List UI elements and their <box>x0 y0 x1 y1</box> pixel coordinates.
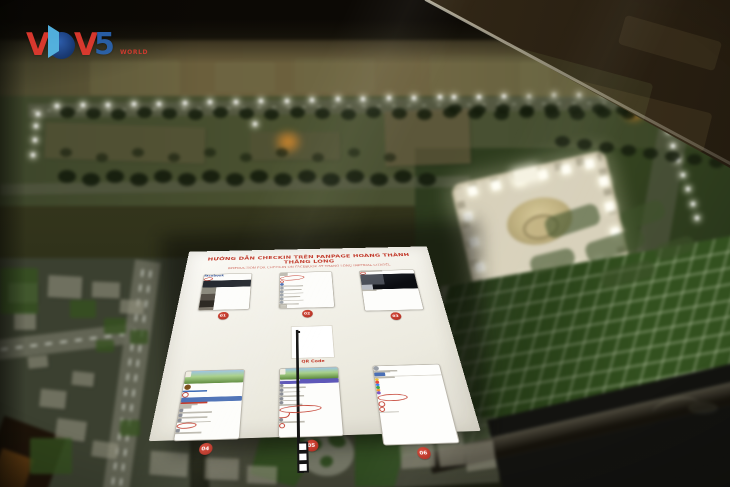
fanpage-cover-photo <box>184 370 244 384</box>
qr-block: QR Code <box>286 325 339 364</box>
logo-letter-v: V <box>74 28 96 62</box>
model-tree <box>96 153 108 162</box>
model-tree <box>348 148 360 157</box>
street-light <box>452 95 456 99</box>
model-tree <box>274 173 292 186</box>
decor-line <box>280 386 306 388</box>
green-patch <box>120 420 140 436</box>
model-building <box>47 275 82 299</box>
street-light <box>477 95 481 99</box>
phone-screenshot-search-results <box>279 271 335 309</box>
phone-screenshot-facebook-home: facebook <box>198 273 253 311</box>
night-photo <box>360 273 418 289</box>
model-tree <box>448 104 462 114</box>
model-tree <box>621 145 636 156</box>
street-light <box>438 95 442 99</box>
model-tree <box>290 107 305 118</box>
qr-finder <box>297 452 309 463</box>
model-tree <box>312 153 324 162</box>
model-tree <box>132 148 144 157</box>
model-tree <box>418 173 436 186</box>
model-tree <box>544 104 558 114</box>
reflection-shape <box>618 15 722 71</box>
model-tree <box>154 170 172 183</box>
street-light <box>336 97 340 101</box>
decor-line <box>175 432 201 434</box>
decor-line <box>179 411 212 413</box>
street-light <box>681 173 685 177</box>
street-light <box>671 144 675 148</box>
gate-image <box>180 371 192 377</box>
leaflet-step-row-2: 04 <box>162 364 470 468</box>
model-tree <box>599 142 614 153</box>
street-light <box>285 99 289 103</box>
step-1: facebook 01 <box>195 273 252 325</box>
step-badge: 03 <box>390 312 402 320</box>
step-badge: 06 <box>416 447 432 459</box>
model-tree <box>496 104 510 114</box>
red-annotation <box>279 423 285 428</box>
qr-finder <box>297 442 308 452</box>
model-tree <box>665 151 680 162</box>
street-light <box>686 187 690 191</box>
model-tree <box>592 104 606 114</box>
decor-line <box>280 395 304 397</box>
model-tree <box>417 109 432 120</box>
banner-image <box>202 280 251 288</box>
model-tree <box>58 170 76 183</box>
street-light <box>310 98 314 102</box>
model-tree <box>168 153 180 162</box>
photo-thumb <box>198 307 214 311</box>
step-6: 06 <box>372 364 463 461</box>
qr-code <box>291 325 335 359</box>
model-tree <box>264 109 279 120</box>
model-tree <box>315 108 330 119</box>
model-tree <box>392 108 407 119</box>
red-annotation <box>176 422 197 429</box>
model-tree <box>472 105 486 115</box>
model-building <box>247 465 278 484</box>
red-annotation <box>378 401 385 407</box>
model-tree <box>643 148 658 159</box>
emoji-dot <box>377 391 381 394</box>
model-tree <box>687 154 702 165</box>
model-building <box>92 282 121 299</box>
step-badge: 04 <box>198 443 213 455</box>
step-5: 05 <box>277 367 346 464</box>
model-tree <box>555 136 570 147</box>
model-tree <box>568 105 582 115</box>
vov5-logo: V V 5 WORLD <box>26 28 148 76</box>
model-tree <box>106 170 124 183</box>
step-badge: 02 <box>302 310 313 318</box>
step-2: 02 <box>278 271 336 323</box>
green-patch <box>96 340 114 352</box>
follow-pill <box>279 307 286 309</box>
qr-finder <box>297 462 309 473</box>
green-patch <box>104 318 126 334</box>
phone-screenshot-fanpage-menu <box>278 367 344 439</box>
model-tree <box>394 170 412 183</box>
phone-screenshot-night-photo <box>359 269 424 311</box>
model-tree <box>60 148 72 157</box>
model-tree <box>298 170 316 183</box>
model-tree <box>204 148 216 157</box>
green-patch <box>70 300 96 318</box>
model-tree <box>370 173 388 186</box>
model-tree <box>130 173 148 186</box>
step-badge: 01 <box>217 312 229 320</box>
model-building <box>120 299 145 315</box>
phone-screenshot-checkin-post <box>372 364 460 446</box>
model-building <box>91 440 119 459</box>
logo-digit-5: 5 <box>94 27 115 62</box>
checkin-instruction-leaflet: HƯỚNG DẪN CHECKIN TRÊN FANPAGE HOÀNG THÀ… <box>149 246 481 441</box>
leaflet-step-row-1: facebook 01 <box>188 269 433 325</box>
model-tree <box>341 109 356 120</box>
street-light <box>31 153 35 157</box>
model-tree <box>202 170 220 183</box>
logo-letter-v: V <box>26 28 48 62</box>
street-light <box>412 96 416 100</box>
model-tree <box>577 139 592 150</box>
edge-shadow <box>0 0 26 487</box>
shadow-area <box>615 438 730 487</box>
street-light <box>387 96 391 100</box>
green-patch <box>130 330 148 344</box>
museum-photo-scene: HƯỚNG DẪN CHECKIN TRÊN FANPAGE HOÀNG THÀ… <box>0 0 730 487</box>
decor-line <box>178 416 207 418</box>
model-tree <box>226 173 244 186</box>
step-4: 04 <box>168 369 245 467</box>
model-tree <box>178 173 196 186</box>
logo-letter-o <box>48 32 75 59</box>
logo-world-text: WORLD <box>120 49 148 56</box>
glass-reflection-blob <box>688 402 718 414</box>
street-light <box>33 138 37 142</box>
model-tree <box>250 170 268 183</box>
green-patch <box>30 438 72 474</box>
gate-image <box>278 369 286 375</box>
model-building <box>71 371 94 387</box>
red-annotation <box>377 393 408 401</box>
model-tree <box>520 105 534 115</box>
model-tree <box>276 148 288 157</box>
logo-digit-wrap: 5 WORLD <box>94 28 148 62</box>
decor-line <box>380 411 399 413</box>
qr-pattern <box>296 329 331 356</box>
qr-label: QR Code <box>301 359 324 364</box>
model-building <box>39 389 67 410</box>
model-building <box>27 355 48 369</box>
step-3: 03 <box>359 269 427 320</box>
model-tree <box>240 153 252 162</box>
phone-screenshot-fanpage <box>173 369 245 441</box>
play-icon <box>48 25 59 58</box>
model-tree <box>346 170 364 183</box>
model-tree <box>366 107 381 118</box>
model-tree <box>384 153 396 162</box>
gate-shape <box>360 274 384 285</box>
decor-line <box>362 290 376 291</box>
model-tree <box>322 173 340 186</box>
street-light <box>361 97 365 101</box>
street-light <box>691 202 695 206</box>
model-tree <box>82 173 100 186</box>
purple-header-bar <box>280 378 339 384</box>
